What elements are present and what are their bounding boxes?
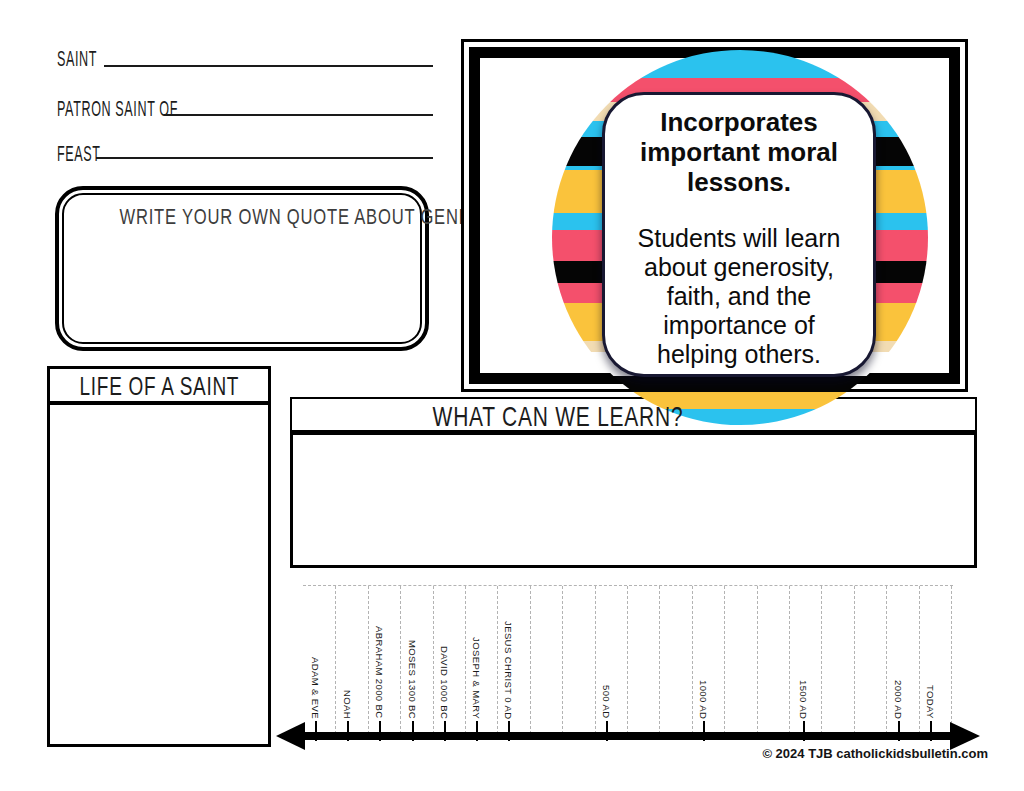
timeline-grid xyxy=(303,585,953,734)
quote-box-inner: WRITE YOUR OWN QUOTE ABOUT GENEROSITY xyxy=(62,193,422,344)
what-can-we-learn-title: WHAT CAN WE LEARN? xyxy=(433,401,684,433)
timeline-gridline xyxy=(497,586,498,734)
timeline-label-text: 2000 AD xyxy=(893,680,904,719)
timeline-label: 500 AD xyxy=(599,585,613,719)
timeline-label-text: ADAM & EVE xyxy=(310,657,321,719)
life-of-a-saint-box: LIFE OF A SAINT xyxy=(47,366,271,747)
timeline-gridline xyxy=(659,586,660,734)
saint-field-label: SAINT xyxy=(57,46,97,71)
timeline-label: 1500 AD xyxy=(796,585,810,719)
timeline-gridline xyxy=(724,586,725,734)
timeline-label-text: ABRAHAM 2000 BC xyxy=(374,626,385,719)
timeline-label-text: 500 AD xyxy=(601,685,612,719)
timeline-gridline xyxy=(335,586,336,734)
timeline-gridline xyxy=(854,586,855,734)
timeline-label-text: 1500 AD xyxy=(798,680,809,719)
timeline-gridline xyxy=(562,586,563,734)
timeline-label-text: DAVID 1000 BC xyxy=(439,646,450,719)
timeline-label: NOAH xyxy=(340,585,354,719)
timeline-gridline xyxy=(821,586,822,734)
info-card-heading: Incorporates important moral lessons. xyxy=(605,107,873,197)
timeline-gridline xyxy=(919,586,920,734)
timeline-label: 2000 AD xyxy=(891,585,905,719)
timeline-gridline xyxy=(757,586,758,734)
timeline-gridline xyxy=(400,586,401,734)
timeline-gridline xyxy=(595,586,596,734)
life-of-a-saint-header: LIFE OF A SAINT xyxy=(50,369,268,405)
timeline-label-text: JOSEPH & MARY xyxy=(471,637,482,719)
timeline-label: MOSES 1300 BC xyxy=(405,585,419,719)
info-card-body: Students will learn about generosity, fa… xyxy=(605,224,873,369)
worksheet-page: SAINT PATRON SAINT OF FEAST WRITE YOUR O… xyxy=(0,0,1024,791)
life-of-a-saint-title: LIFE OF A SAINT xyxy=(80,371,240,403)
timeline-gridline xyxy=(368,586,369,734)
feast-field-label: FEAST xyxy=(57,141,101,166)
timeline-label: 1000 AD xyxy=(696,585,710,719)
timeline-gridline xyxy=(530,586,531,734)
timeline-label: JESUS CHRIST 0 AD xyxy=(501,585,515,719)
timeline-label-text: MOSES 1300 BC xyxy=(407,640,418,719)
feast-field-line xyxy=(96,157,433,159)
timeline-gridline xyxy=(465,586,466,734)
quote-box: WRITE YOUR OWN QUOTE ABOUT GENEROSITY xyxy=(55,186,429,351)
what-can-we-learn-writing-area xyxy=(290,431,977,568)
timeline-gridline xyxy=(789,586,790,734)
patron-saint-field-line xyxy=(164,114,433,116)
timeline-label: TODAY xyxy=(923,585,937,719)
timeline-label: ABRAHAM 2000 BC xyxy=(372,585,386,719)
timeline-label-text: NOAH xyxy=(342,690,353,719)
copyright-text: © 2024 TJB catholickidsbulletin.com xyxy=(690,746,988,761)
patron-saint-field-label: PATRON SAINT OF xyxy=(57,96,178,121)
timeline-gridline xyxy=(886,586,887,734)
timeline-arrow-shaft xyxy=(293,732,953,740)
timeline-label: JOSEPH & MARY xyxy=(469,585,483,719)
timeline-label-text: TODAY xyxy=(925,685,936,719)
timeline-gridline xyxy=(627,586,628,734)
timeline-gridline xyxy=(951,586,952,734)
timeline-arrowhead-left xyxy=(276,722,305,750)
timeline-gridline xyxy=(433,586,434,734)
timeline-label-text: JESUS CHRIST 0 AD xyxy=(503,621,514,719)
timeline-label: DAVID 1000 BC xyxy=(437,585,451,719)
info-card: Incorporates important moral lessons. St… xyxy=(602,92,876,377)
saint-field-line xyxy=(104,65,433,67)
timeline-label-text: 1000 AD xyxy=(698,680,709,719)
timeline-label: ADAM & EVE xyxy=(308,585,322,719)
timeline-gridline xyxy=(692,586,693,734)
